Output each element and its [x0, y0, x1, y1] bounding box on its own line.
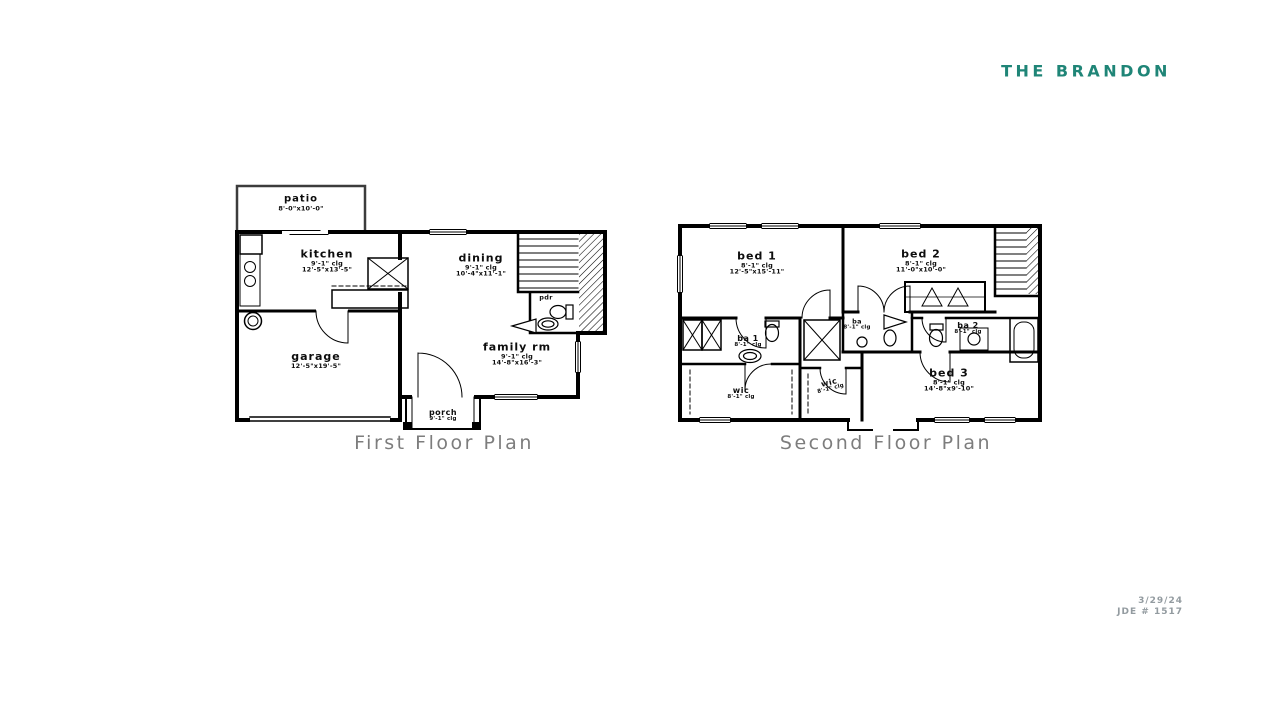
plan-footer: 3/29/24 JDE # 1517: [1117, 596, 1183, 618]
powder-room-fixtures: [538, 305, 573, 330]
stair-direction-arrow: [512, 319, 536, 333]
room-label-bed1: bed 1 8'-1" clg 12'-5"x15'-11": [730, 250, 785, 275]
floorplan-drawing: [0, 0, 1280, 720]
stair-direction-arrow-2: [884, 315, 906, 329]
first-floor-drawing: [237, 186, 605, 430]
room-label-family-rm: family rm 9'-1" clg 14'-8"x16'-3": [483, 341, 551, 366]
bed2-closet: [905, 282, 985, 312]
footer-date: 3/29/24: [1117, 596, 1183, 607]
second-floor-stairs: [995, 226, 1040, 296]
room-label-ba2: ba 2 8'-1" clg: [954, 322, 981, 336]
room-label-wic1: wic 8'-1" clg: [727, 387, 754, 401]
room-label-bed2: bed 2 8'-1" clg 11'-0"x10'-0": [896, 248, 946, 273]
plan-title: THE BRANDON: [1001, 62, 1171, 81]
room-label-bed3: bed 3 8'-1" clg 14'-8"x9'-10": [924, 367, 974, 392]
room-label-ba: ba 8'-1" clg: [843, 319, 870, 332]
first-floor-caption: First Floor Plan: [354, 432, 534, 454]
second-floor-caption: Second Floor Plan: [780, 432, 992, 454]
room-label-patio: patio 8'-0"x10'-0": [278, 194, 323, 211]
room-label-dining: dining 9'-1" clg 10'-4"x11'-1": [456, 252, 506, 277]
room-label-porch: porch 9'-1" clg: [429, 409, 457, 423]
room-label-garage: garage 12'-5"x19'-5": [291, 351, 341, 369]
room-label-pdr: pdr: [539, 295, 552, 302]
room-label-ba1: ba 1 8'-1" clg: [734, 335, 761, 349]
footer-job-number: JDE # 1517: [1117, 607, 1183, 618]
floorplan-sheet: THE BRANDON patio 8'-0"x10'-0" kitchen 9…: [0, 0, 1280, 720]
room-label-kitchen: kitchen 9'-1" clg 12'-5"x13'-5": [301, 248, 354, 273]
